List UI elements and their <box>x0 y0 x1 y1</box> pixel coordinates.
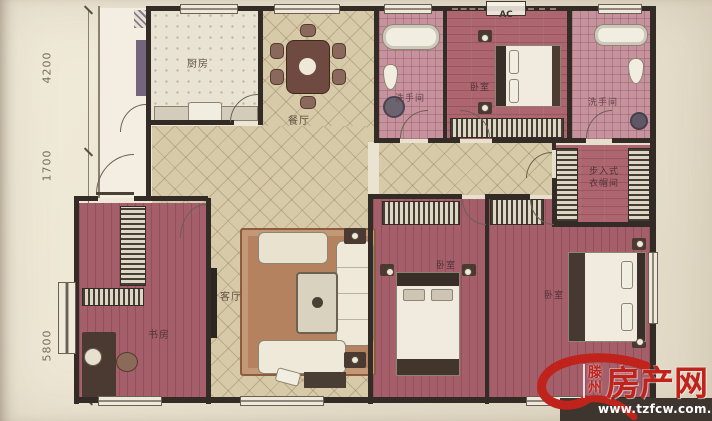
bed-icon <box>568 252 646 342</box>
pillow-icon <box>509 79 519 103</box>
sink-icon <box>630 112 648 130</box>
watermark-city: 滕州 <box>588 366 604 397</box>
dining-chair-icon <box>270 69 284 85</box>
pillow-icon <box>509 50 519 74</box>
bathtub-icon <box>382 24 440 50</box>
wall <box>486 194 530 199</box>
pillow-icon <box>621 303 633 331</box>
room-label-bedroom-right: 卧室 <box>544 288 564 301</box>
lamp-icon <box>636 338 644 346</box>
ac-dash-line <box>528 8 556 10</box>
globe-icon <box>84 348 102 366</box>
chaise-icon <box>258 340 346 374</box>
bed-headboard <box>397 273 459 286</box>
wall <box>485 194 489 404</box>
window <box>98 396 162 406</box>
tv-icon <box>210 268 217 338</box>
window <box>240 396 324 406</box>
ac-label: AC <box>499 10 513 20</box>
lamp-icon <box>636 240 644 248</box>
room-label-bedroom-mid: 卧室 <box>436 258 456 271</box>
wall <box>650 6 656 403</box>
wall <box>552 222 656 227</box>
lamp-icon <box>351 232 359 240</box>
wall <box>443 11 447 143</box>
ac-dash-line <box>452 8 484 10</box>
pillow-icon <box>431 289 453 301</box>
hallway-floor <box>379 143 552 195</box>
desk-chair-icon <box>116 352 138 372</box>
dining-chair-icon <box>332 69 346 85</box>
room-label-study: 书房 <box>148 326 170 341</box>
bed-headboard <box>496 46 506 106</box>
room-label-closet: 步入式衣帽间 <box>586 166 622 190</box>
window <box>648 252 658 324</box>
window <box>598 4 642 14</box>
floor-plan-photo: 4200 1700 5800 <box>0 0 712 421</box>
watermark-url: www.tzfcw.com.cn <box>598 402 712 416</box>
bed-icon <box>396 272 460 376</box>
room-label-bath-top: 洗手间 <box>395 91 425 104</box>
dining-chair-icon <box>300 96 316 109</box>
room-label-kitchen: 厨房 <box>187 55 209 70</box>
wardrobe-icon <box>556 148 578 222</box>
wall <box>377 138 400 143</box>
room-label-living: 客厅 <box>220 288 242 303</box>
bookshelf-icon <box>82 288 144 306</box>
lamp-icon <box>481 34 489 42</box>
wardrobe-icon <box>628 148 650 222</box>
wall <box>258 6 263 125</box>
window <box>180 4 238 14</box>
bed-footboard <box>552 46 560 106</box>
wall <box>98 6 100 198</box>
pillow-icon <box>403 289 425 301</box>
bathtub-icon <box>594 24 648 46</box>
wall <box>146 122 151 198</box>
wardrobe-icon <box>382 201 460 225</box>
vase-icon <box>312 297 323 308</box>
room-label-dining: 餐厅 <box>288 112 310 127</box>
lamp-icon <box>464 268 472 276</box>
wall <box>368 194 373 404</box>
bookshelf-icon <box>120 206 146 286</box>
wall <box>206 198 211 404</box>
watermark-brand: 房产网 <box>606 356 708 405</box>
dining-chair-icon <box>332 43 346 59</box>
kitchen-sink-icon <box>188 102 222 122</box>
bed-headboard <box>637 253 645 341</box>
lamp-icon <box>481 104 489 112</box>
dimension-label-top: 4200 <box>41 38 54 98</box>
dining-plate-icon <box>299 58 316 75</box>
window <box>384 4 432 14</box>
lamp-icon <box>351 356 359 364</box>
media-cabinet-icon <box>304 372 346 388</box>
loveseat-icon <box>258 232 328 264</box>
watermark-divider <box>583 364 585 398</box>
dimension-label-middle: 1700 <box>41 136 54 196</box>
desk-icon <box>82 332 116 398</box>
dining-chair-icon <box>300 24 316 37</box>
bay-window <box>58 282 76 354</box>
room-label-bedroom-top: 卧室 <box>470 80 490 93</box>
wall <box>567 6 572 143</box>
wall <box>146 6 151 122</box>
pillow-icon <box>621 261 633 289</box>
door-leaf <box>96 192 134 195</box>
dimension-label-bottom: 5800 <box>41 316 54 376</box>
ac-box: AC <box>486 1 526 16</box>
window <box>274 4 340 14</box>
bed-footboard <box>397 359 459 375</box>
room-label-bath-right: 洗手间 <box>588 95 618 108</box>
bed-footboard <box>569 253 585 341</box>
wall <box>150 120 234 125</box>
lamp-icon <box>386 268 394 276</box>
wall <box>552 140 556 150</box>
dining-chair-icon <box>270 43 284 59</box>
wall <box>374 6 379 143</box>
wall <box>368 194 462 199</box>
bed-icon <box>495 45 561 107</box>
